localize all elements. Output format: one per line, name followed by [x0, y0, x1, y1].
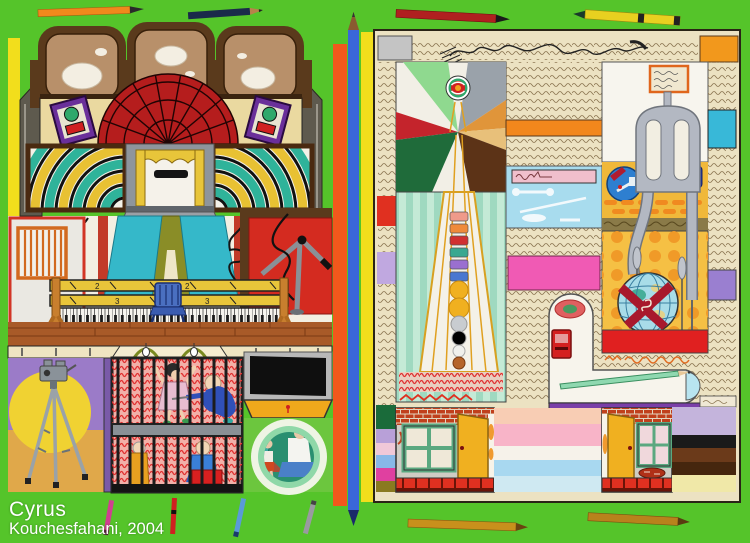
left-panel-theater: 2 2 3 3	[8, 22, 334, 495]
stool	[192, 470, 222, 484]
divider-blue-pencil	[348, 12, 359, 526]
right-panel-drawing	[374, 30, 740, 502]
red-block	[377, 196, 396, 226]
mail-slot	[154, 170, 188, 178]
house-right	[602, 408, 672, 492]
purple-block	[708, 270, 736, 300]
wood-floor	[8, 322, 332, 346]
rail-mark: 2	[95, 282, 100, 291]
pencil-navy	[188, 7, 263, 19]
pencil-red	[396, 9, 510, 23]
cage-with-children	[104, 358, 242, 492]
artist-name: Cyrus	[9, 499, 164, 520]
figure-panel	[602, 62, 708, 402]
magenta-panel	[508, 256, 600, 290]
artist-surname-year: Kouchesfahani, 2004	[9, 520, 164, 538]
pastel-stripes	[494, 408, 602, 492]
rail-mark: 3	[205, 297, 210, 306]
signboard	[650, 66, 688, 92]
artwork-drawing: 2 2 3 3	[0, 0, 750, 543]
rail-mark: 3	[115, 297, 120, 306]
ray-tower	[396, 62, 506, 402]
window-right	[638, 424, 670, 466]
artist-caption: Cyrus Kouchesfahani, 2004	[9, 499, 164, 538]
artwork-photo: 2 2 3 3	[0, 0, 750, 543]
pencil-yellow	[573, 9, 680, 25]
panel-divider	[333, 12, 374, 526]
lavender-block	[377, 252, 396, 284]
rail-mark: 2	[185, 282, 190, 291]
pool-panel	[506, 166, 602, 228]
pencil-gold-2	[588, 513, 690, 526]
ornament	[639, 468, 665, 478]
door-right	[608, 414, 634, 478]
pencil-gold-1	[408, 519, 528, 531]
window-left	[404, 426, 454, 470]
hanging-globe	[618, 273, 678, 333]
cyan-block	[708, 110, 736, 148]
orange-bar	[506, 120, 602, 136]
pencil-stub-gray	[303, 500, 317, 534]
right-stripe-column	[672, 396, 736, 492]
pencil-orange	[38, 6, 144, 17]
orange-corner-block	[700, 36, 738, 62]
red-band	[602, 330, 708, 353]
divider-orange-stripe	[333, 44, 347, 506]
gray-corner-block	[378, 36, 412, 60]
left-scribble-column	[377, 62, 396, 405]
divider-yellow-stripe	[361, 32, 374, 502]
pencil-sharpener	[552, 330, 571, 358]
right-scribble-column	[708, 62, 736, 402]
spotlight-room	[8, 358, 104, 492]
door-left	[458, 414, 494, 478]
photographers-in-circle	[244, 418, 334, 495]
pencil-stub-red	[170, 498, 177, 534]
black-screen	[244, 352, 332, 418]
house-facade	[376, 396, 736, 492]
left-stripe-column	[376, 405, 396, 492]
house-left	[396, 408, 494, 492]
pencil-stub-blue	[233, 498, 246, 537]
left-yellow-edge	[8, 38, 20, 216]
